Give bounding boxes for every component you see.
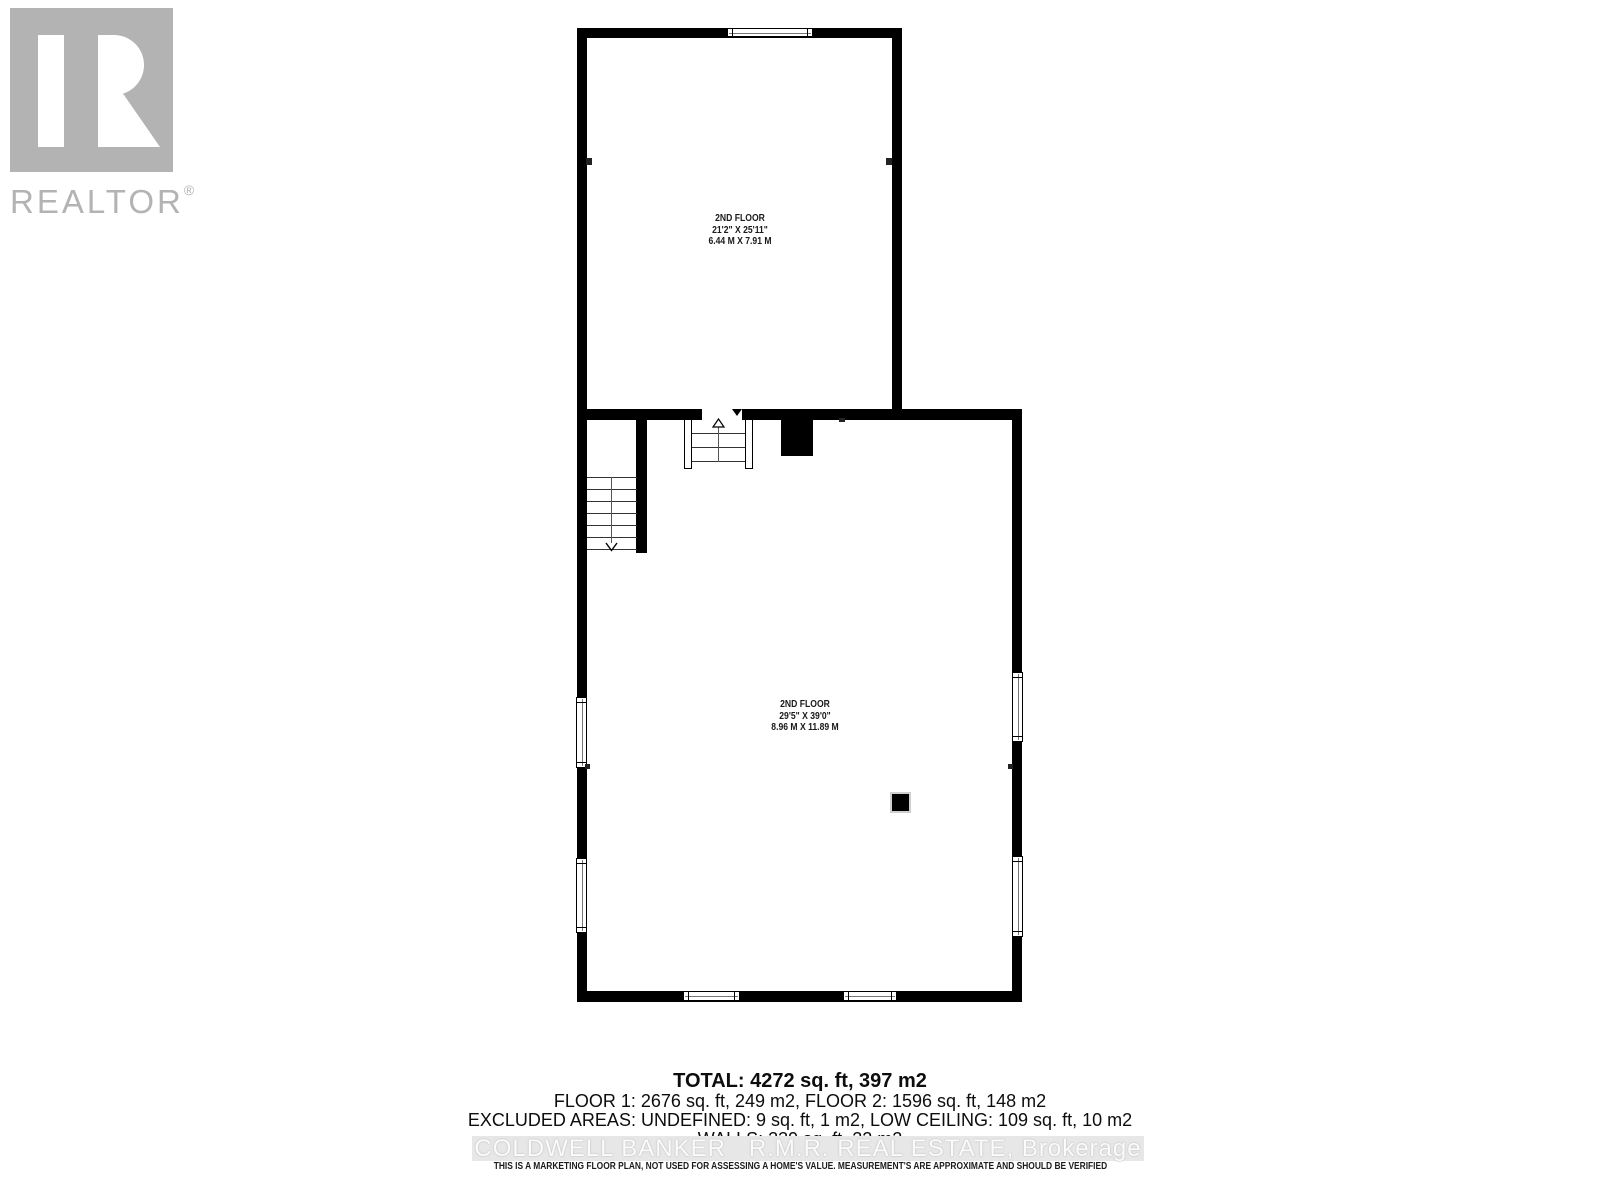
stair-up-arrow-icon — [712, 418, 725, 428]
window-bottom-1 — [683, 991, 740, 1001]
stair-tread — [587, 513, 637, 514]
stair-tread — [587, 477, 637, 478]
wall-divider-right — [742, 409, 1022, 420]
stair-rail-right — [745, 419, 753, 469]
realtor-r-icon — [10, 8, 173, 172]
stair-tread — [587, 537, 637, 538]
window-right-1 — [1012, 672, 1023, 742]
brokerage-watermark-text: COLDWELL BANKER R.M.R. REAL ESTATE, Brok… — [474, 1136, 1141, 1161]
room-dimensions-imperial: 29'5" X 39'0" — [710, 711, 899, 723]
support-post — [890, 792, 911, 813]
excluded-areas-text: EXCLUDED AREAS: UNDEFINED: 9 sq. ft, 1 m… — [300, 1111, 1300, 1130]
stair-entry-arrow-icon — [732, 409, 742, 416]
floor-plan-page: REALTOR® — [0, 0, 1600, 1200]
room-dimensions-metric: 6.44 M X 7.91 M — [645, 236, 834, 248]
wall-tick — [586, 158, 592, 165]
stair-tread — [587, 525, 637, 526]
disclaimer-text: THIS IS A MARKETING FLOOR PLAN, NOT USED… — [493, 1160, 1107, 1172]
wall-tick — [839, 418, 845, 422]
wall-tick — [1008, 764, 1013, 769]
wall-upper-right — [892, 28, 902, 420]
window-right-2 — [1012, 856, 1023, 937]
window-bottom-2 — [843, 991, 897, 1001]
wall-tick — [886, 158, 892, 165]
wall-tick — [585, 764, 590, 769]
total-area-text: TOTAL: 4272 sq. ft, 397 m2 — [300, 1071, 1300, 1092]
wall-exterior-left — [577, 28, 587, 1002]
stair-center-line — [718, 427, 719, 462]
realtor-logo: REALTOR® — [10, 8, 210, 218]
stair-center-line — [611, 477, 612, 543]
chimney-block — [781, 420, 813, 456]
room-dimensions-metric: 8.96 M X 11.89 M — [710, 722, 899, 734]
realtor-wordmark: REALTOR® — [10, 185, 210, 218]
room-dimensions-imperial: 21'2" X 25'11" — [645, 225, 834, 237]
wall-stairwell — [636, 420, 647, 553]
registered-trademark-icon: ® — [184, 182, 194, 198]
brokerage-watermark-band: COLDWELL BANKER R.M.R. REAL ESTATE, Brok… — [472, 1136, 1144, 1161]
window-left-1 — [576, 697, 587, 768]
stair-rail-left — [684, 419, 692, 469]
upper-room-label: 2ND FLOOR 21'2" X 25'11" 6.44 M X 7.91 M — [645, 213, 834, 248]
stair-tread — [587, 501, 637, 502]
stair-tread — [587, 489, 637, 490]
room-name: 2ND FLOOR — [645, 213, 834, 225]
wall-lower-bottom — [577, 991, 1022, 1002]
window-upper-top — [727, 28, 813, 37]
room-name: 2ND FLOOR — [710, 699, 899, 711]
disclaimer-row: THIS IS A MARKETING FLOOR PLAN, NOT USED… — [300, 1160, 1300, 1172]
stair-down-arrow-icon — [605, 542, 618, 552]
lower-room-label: 2ND FLOOR 29'5" X 39'0" 8.96 M X 11.89 M — [710, 699, 899, 734]
window-left-2 — [576, 858, 587, 933]
floor-breakdown-text: FLOOR 1: 2676 sq. ft, 249 m2, FLOOR 2: 1… — [300, 1092, 1300, 1111]
